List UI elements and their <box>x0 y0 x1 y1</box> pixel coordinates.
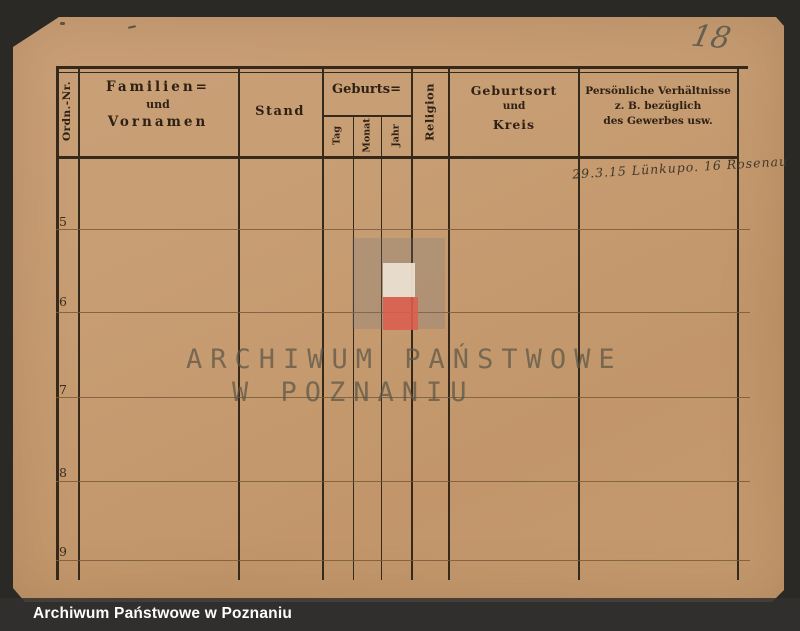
caption-bar: Archiwum Państwowe w Poznaniu <box>0 598 800 631</box>
row-number: 6 <box>54 294 72 309</box>
column-header-kreis: Kreis <box>450 117 578 132</box>
column-header-geburts: Geburts= <box>322 82 411 97</box>
column-header-pers-line1: Persönliche Verhältnisse <box>580 85 736 97</box>
subcolumn-header-jahr: Jahr <box>391 116 402 156</box>
row-number: 5 <box>54 214 72 229</box>
column-header-und: und <box>83 98 233 111</box>
scan-overlay-white-patch <box>383 263 415 297</box>
table-right-border <box>737 66 739 580</box>
header-bottom-rule <box>56 156 737 159</box>
table-left-border <box>56 66 59 580</box>
col-divider-name <box>238 66 240 580</box>
row-number: 7 <box>54 382 72 397</box>
column-header-pers-line2: z. B. bezüglich <box>580 100 736 112</box>
subcolumn-header-monat: Monat <box>362 116 373 156</box>
caption-text: Archiwum Państwowe w Poznaniu <box>33 605 292 623</box>
column-header-religion: Religion <box>423 70 437 155</box>
column-header-stand: Stand <box>240 104 320 119</box>
archive-watermark-line1: ARCHIWUM PAŃSTWOWE <box>186 344 623 375</box>
table-top-border-inner <box>56 72 737 73</box>
scan-overlay-red-patch <box>383 297 418 330</box>
table-top-border <box>56 66 748 69</box>
scanned-document-view: Ordn.-Nr. Familien= und Vornamen Stand G… <box>0 0 800 631</box>
row-line <box>56 481 750 482</box>
row-line <box>56 229 750 230</box>
column-header-vornamen: Vornamen <box>83 114 233 130</box>
row-number: 8 <box>54 465 72 480</box>
column-header-familien: Familien= <box>83 79 233 95</box>
column-header-ort-und: und <box>450 100 578 112</box>
column-header-pers-line3: des Gewerbes usw. <box>580 115 736 127</box>
subcolumn-header-tag: Tag <box>332 116 343 156</box>
archive-watermark-line2: W POZNANIU <box>232 377 475 408</box>
col-divider-ordn <box>78 66 80 580</box>
column-header-geburtsort: Geburtsort <box>450 83 578 98</box>
col-divider-religion <box>448 66 450 580</box>
column-header-ordn-nr: Ordn.-Nr. <box>61 71 73 151</box>
row-number: 9 <box>54 544 72 559</box>
row-line <box>56 560 750 561</box>
paper-speck <box>60 22 65 25</box>
handwritten-page-number: 18 <box>688 19 733 56</box>
col-divider-geburtsort <box>578 66 580 580</box>
col-divider-stand <box>322 66 324 580</box>
